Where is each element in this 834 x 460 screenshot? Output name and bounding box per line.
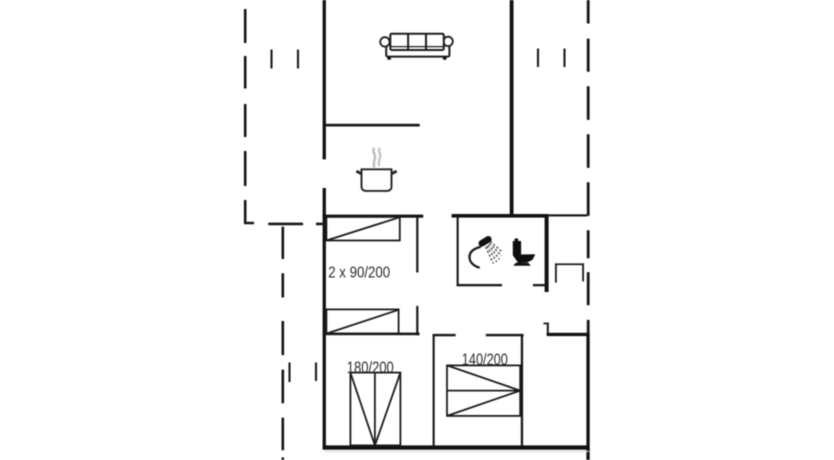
svg-text:140/200: 140/200: [462, 350, 508, 369]
svg-text:180/200: 180/200: [347, 359, 394, 377]
svg-text:2 x 90/200: 2 x 90/200: [328, 265, 390, 282]
